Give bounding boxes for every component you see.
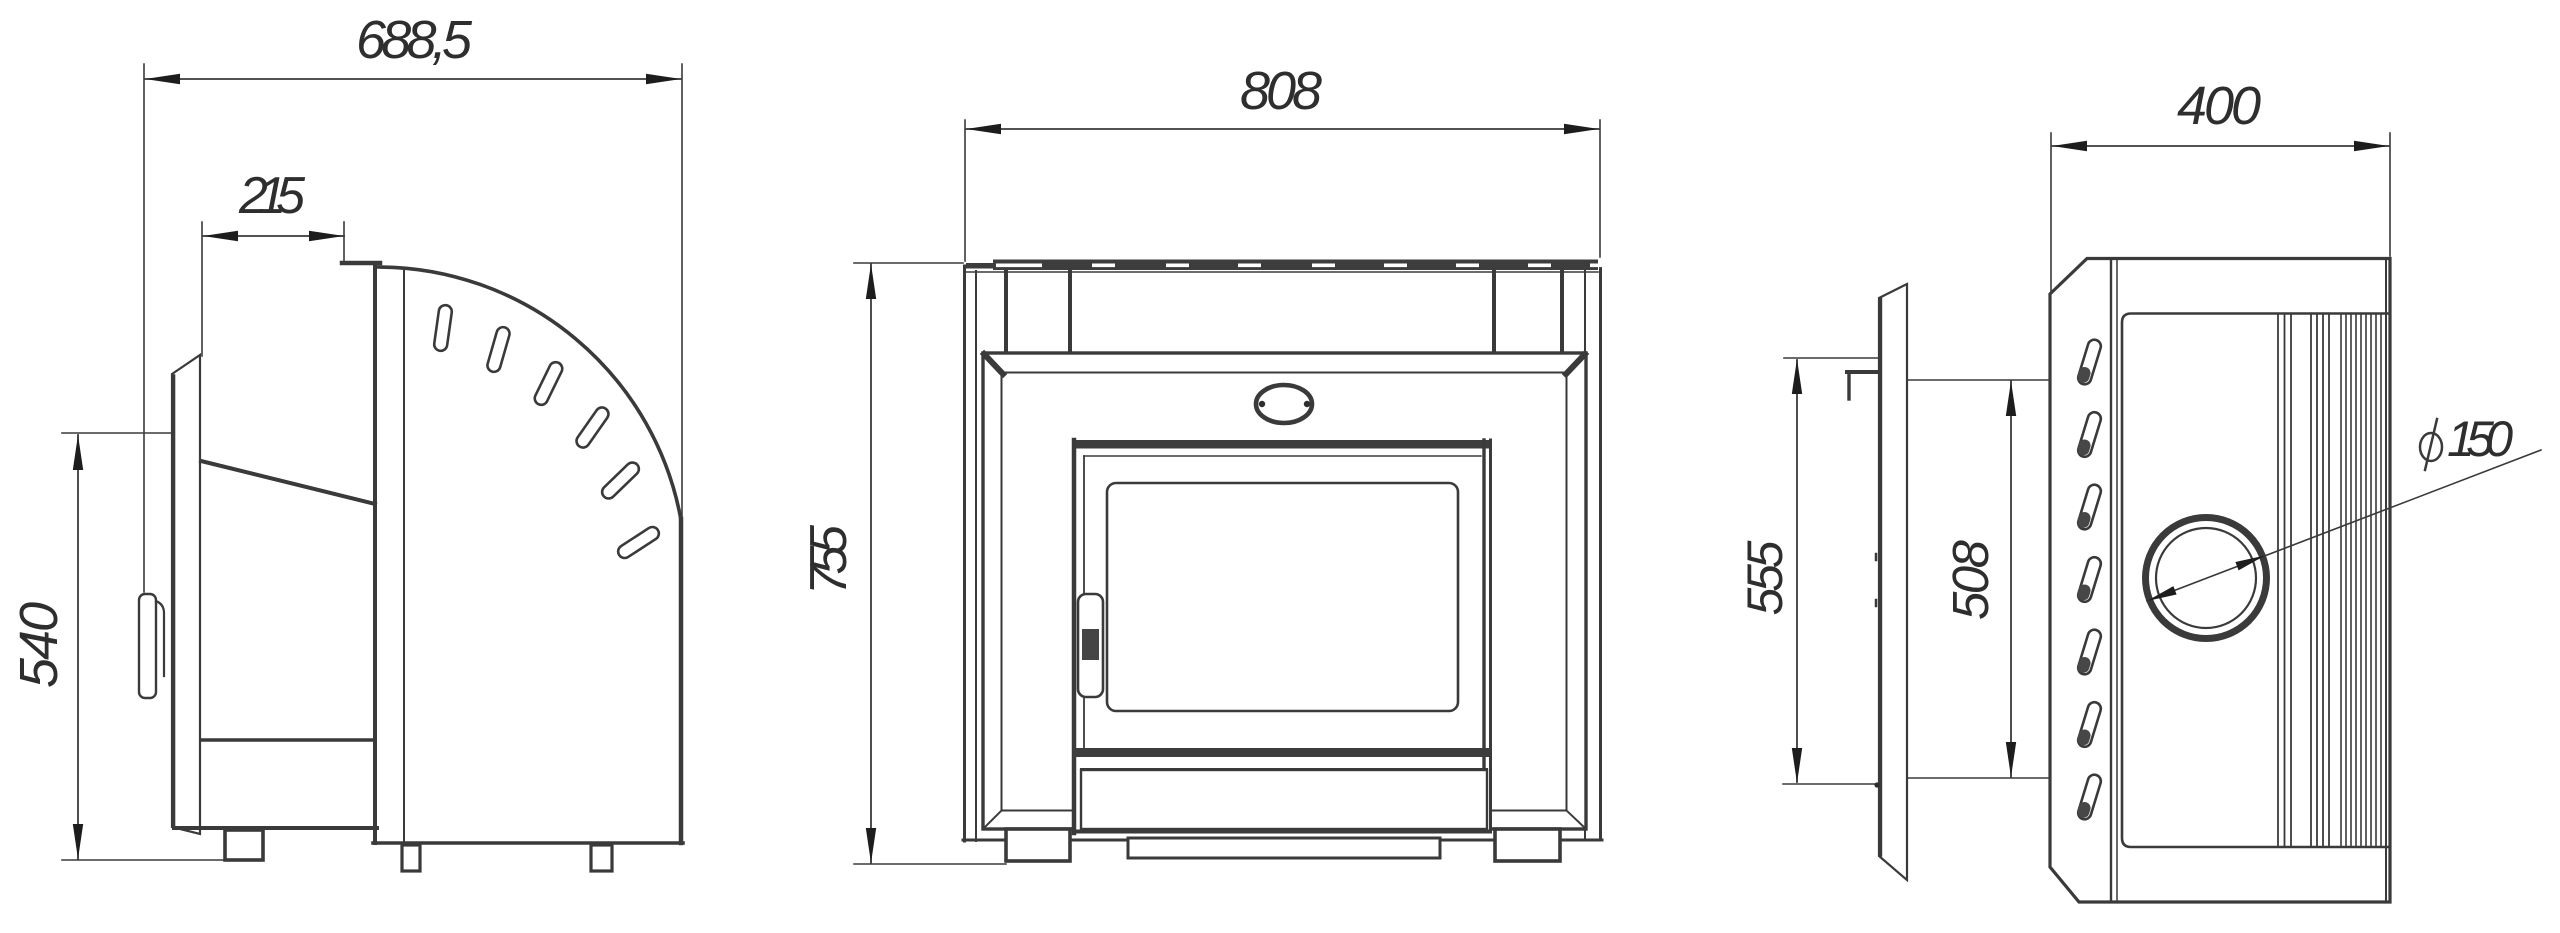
svg-text:555: 555 bbox=[1737, 540, 1793, 615]
svg-text:150: 150 bbox=[2447, 411, 2513, 467]
svg-text:688,5: 688,5 bbox=[356, 10, 473, 70]
svg-text:215: 215 bbox=[238, 167, 306, 225]
svg-text:540: 540 bbox=[9, 602, 69, 688]
svg-text:508: 508 bbox=[1942, 539, 1999, 620]
svg-text:808: 808 bbox=[1240, 61, 1322, 121]
svg-text:755: 755 bbox=[800, 524, 858, 595]
svg-text:400: 400 bbox=[2177, 76, 2261, 136]
